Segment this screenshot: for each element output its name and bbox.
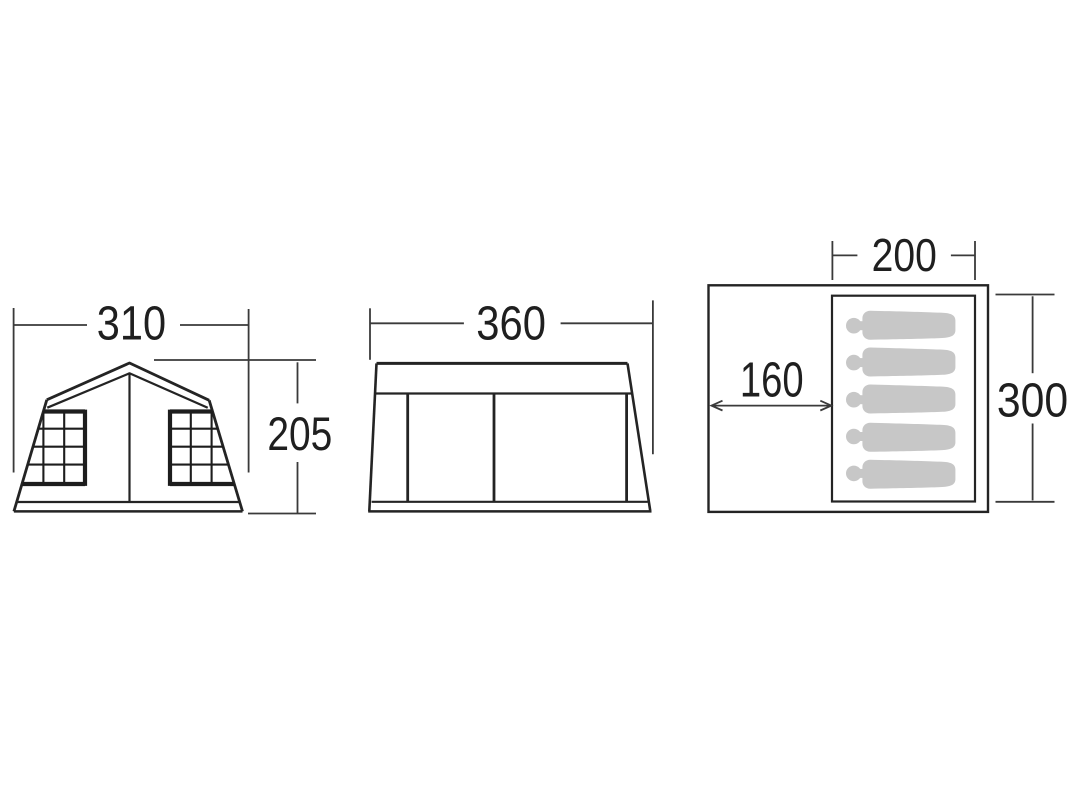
svg-text:360: 360 (476, 296, 546, 350)
svg-text:310: 310 (97, 295, 166, 350)
svg-text:160: 160 (740, 353, 804, 408)
svg-text:205: 205 (267, 409, 332, 461)
svg-text:300: 300 (997, 373, 1068, 427)
svg-text:200: 200 (872, 230, 937, 282)
